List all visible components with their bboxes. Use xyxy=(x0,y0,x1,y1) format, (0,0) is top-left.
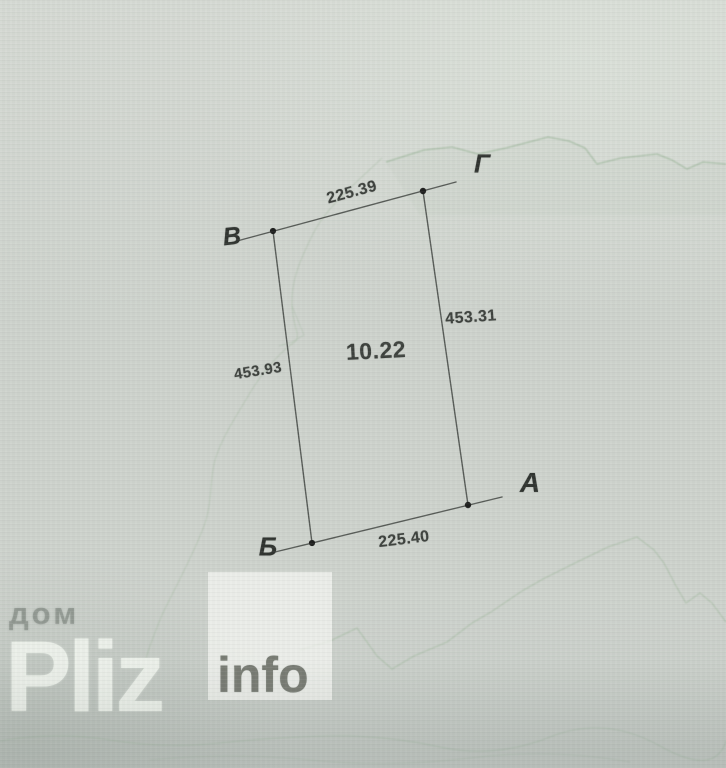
watermark-brand-text: Pliz xyxy=(5,631,161,723)
parcel-area-label: 10.22 xyxy=(345,336,406,366)
point-label-a: А xyxy=(520,467,540,499)
watermark-info-box: info xyxy=(208,572,332,700)
point-label-g: Г xyxy=(474,149,490,180)
contour-bottom-wave-2 xyxy=(150,754,630,764)
parcel-side-right xyxy=(423,191,468,505)
watermark-info-text: info xyxy=(217,650,309,700)
parcel-side-left xyxy=(273,231,312,543)
measurement-right-side: 453.31 xyxy=(445,307,497,329)
survey-point-b xyxy=(309,540,315,546)
survey-point-v xyxy=(270,228,276,234)
scanned-cadastral-plan: В Г А Б 225.39 453.31 453.93 225.40 10.2… xyxy=(0,0,726,768)
contour-bottom-zigzag xyxy=(300,537,726,669)
survey-point-a xyxy=(465,502,471,508)
survey-point-g xyxy=(420,188,426,194)
point-label-b: Б xyxy=(259,532,277,563)
point-label-v: В xyxy=(222,222,243,253)
